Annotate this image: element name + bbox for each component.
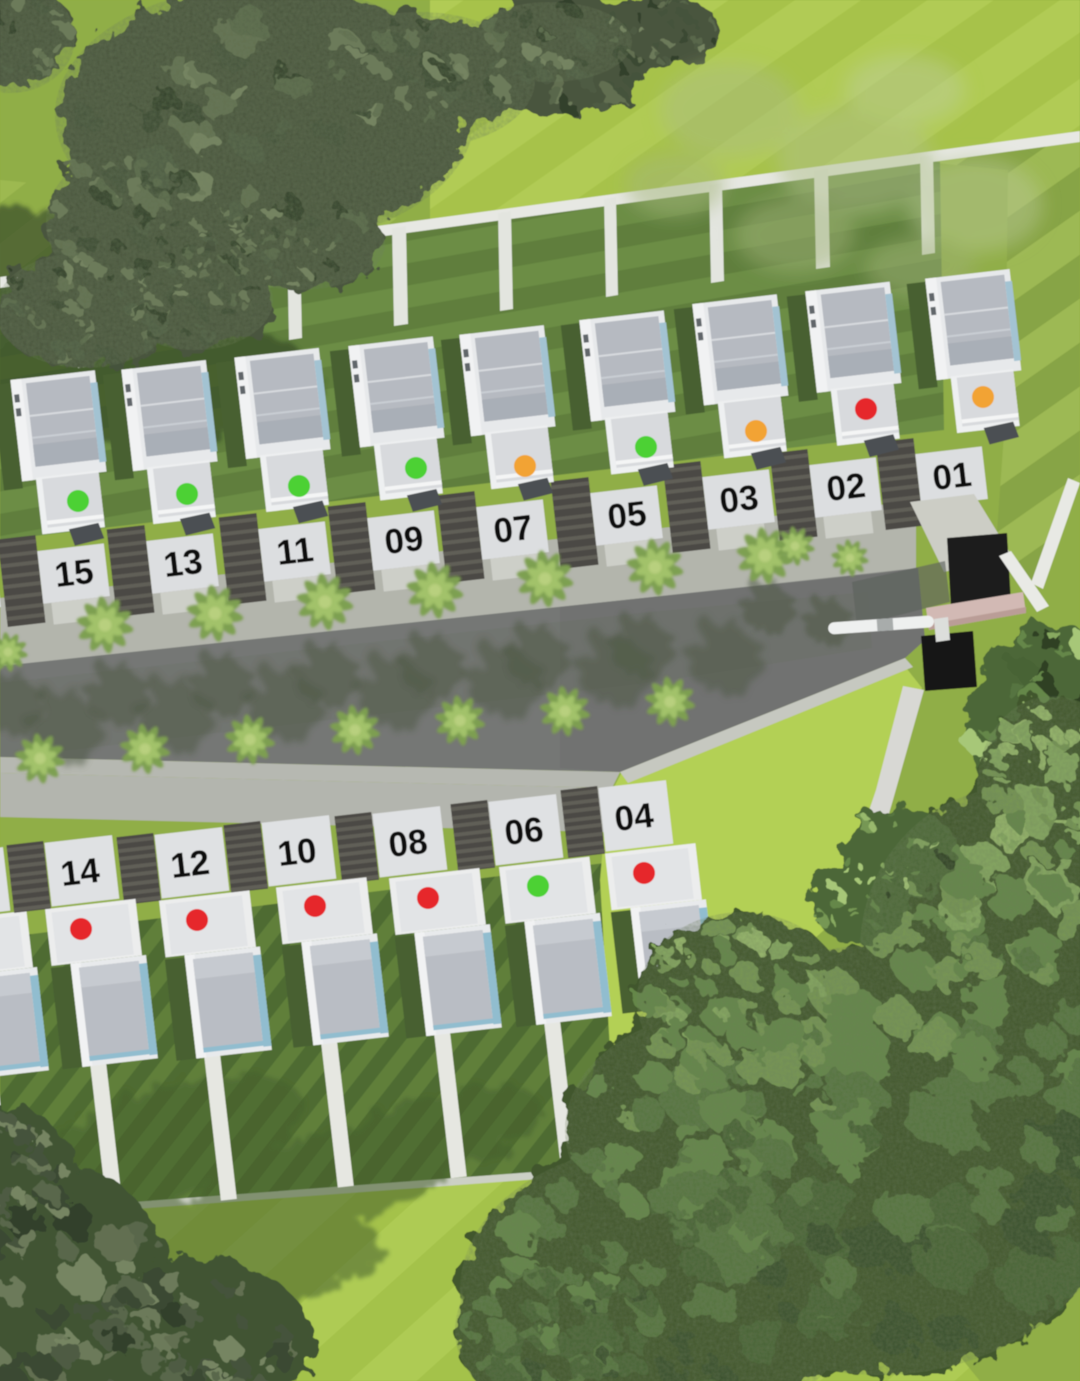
- svg-text:08: 08: [386, 822, 429, 865]
- svg-text:10: 10: [275, 831, 318, 874]
- svg-text:09: 09: [382, 519, 425, 562]
- svg-text:01: 01: [930, 455, 973, 498]
- svg-text:03: 03: [717, 478, 760, 521]
- svg-text:11: 11: [274, 530, 315, 573]
- svg-text:12: 12: [168, 843, 211, 886]
- svg-text:02: 02: [824, 466, 867, 509]
- svg-text:07: 07: [491, 508, 534, 551]
- svg-text:13: 13: [161, 542, 204, 585]
- svg-text:06: 06: [502, 810, 545, 853]
- svg-text:14: 14: [58, 851, 102, 894]
- svg-text:05: 05: [605, 494, 648, 537]
- svg-text:15: 15: [52, 552, 95, 595]
- svg-text:04: 04: [612, 796, 656, 839]
